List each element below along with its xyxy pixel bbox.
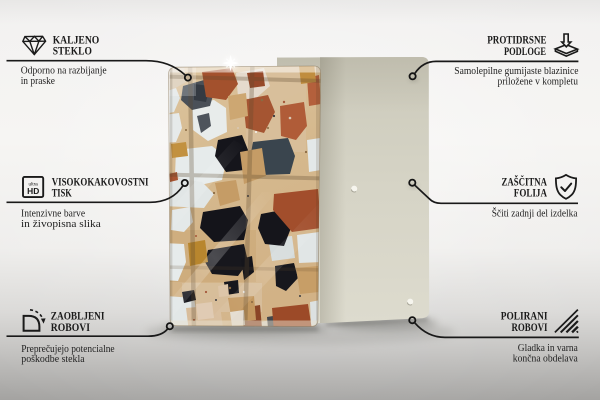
svg-text:PROTIDRSNE: PROTIDRSNE xyxy=(487,35,546,47)
svg-text:ZAOBLJENI: ZAOBLJENI xyxy=(51,310,105,322)
svg-text:FOLIJA: FOLIJA xyxy=(514,188,547,200)
svg-text:ROBOVI: ROBOVI xyxy=(512,322,548,334)
svg-text:poškodbe stekla: poškodbe stekla xyxy=(21,354,85,365)
svg-text:PODLOGE: PODLOGE xyxy=(504,46,546,58)
svg-text:Samolepilne gumijaste blazinic: Samolepilne gumijaste blazinice xyxy=(454,66,579,77)
svg-text:Odporno na razbijanje: Odporno na razbijanje xyxy=(21,65,107,76)
svg-text:in praske: in praske xyxy=(21,76,56,87)
svg-text:HD: HD xyxy=(27,186,39,196)
svg-text:TISK: TISK xyxy=(52,188,72,200)
svg-text:Gladka in varna: Gladka in varna xyxy=(518,343,578,354)
svg-text:STEKLO: STEKLO xyxy=(53,46,92,58)
svg-text:Preprečujejo potencialne: Preprečujejo potencialne xyxy=(21,344,115,355)
svg-text:ZAŠČITNA: ZAŠČITNA xyxy=(502,175,548,188)
svg-text:Ščiti zadnji del izdelka: Ščiti zadnji del izdelka xyxy=(492,207,578,219)
svg-text:in živopisna slika: in živopisna slika xyxy=(21,219,101,230)
svg-text:priložene v kompletu: priložene v kompletu xyxy=(498,76,579,87)
svg-text:ROBOVI: ROBOVI xyxy=(51,322,90,334)
svg-text:POLIRANI: POLIRANI xyxy=(501,310,548,322)
svg-text:Intenzivne barve: Intenzivne barve xyxy=(21,208,86,219)
svg-text:končna obdelava: končna obdelava xyxy=(513,354,578,365)
svg-text:KALJENO: KALJENO xyxy=(53,35,100,47)
